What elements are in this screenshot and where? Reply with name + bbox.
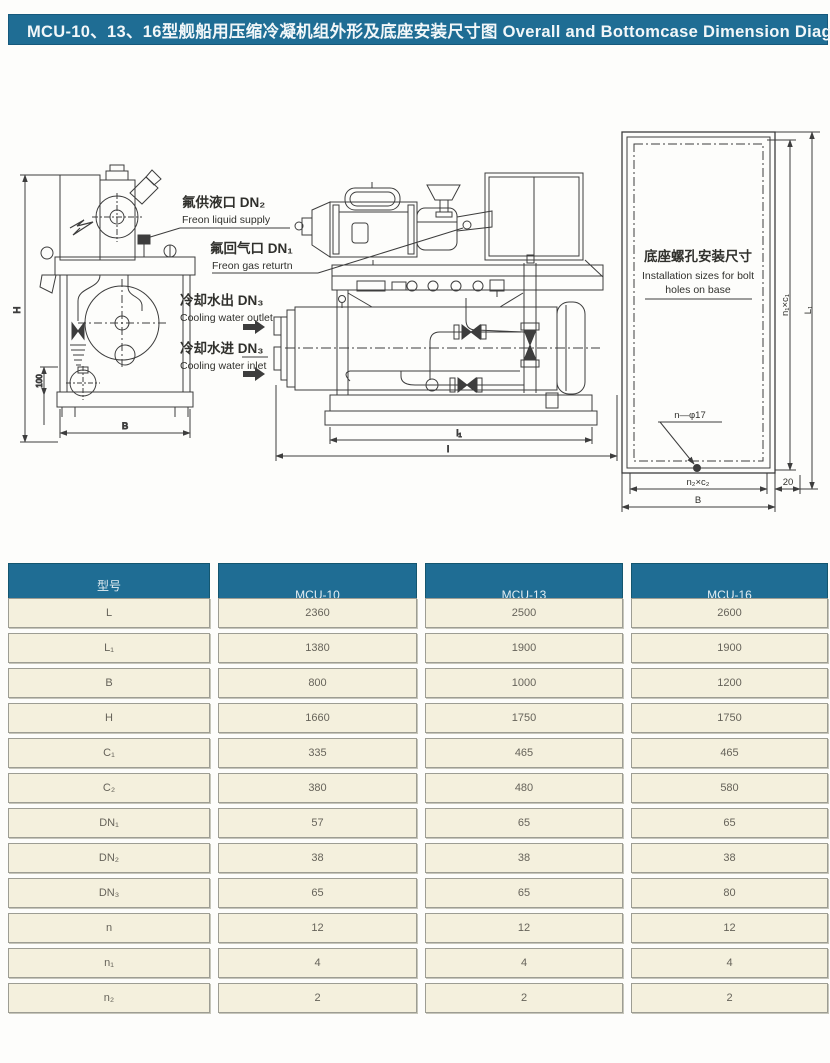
param-cell-H: H xyxy=(8,703,210,733)
value-cell: 2 xyxy=(218,983,417,1013)
value-cell: 2 xyxy=(425,983,623,1013)
param-cell-DN1: DN₁ xyxy=(8,808,210,838)
callout-water-inlet-en: Cooling water inlet xyxy=(180,360,266,372)
value-cell: 4 xyxy=(218,948,417,978)
value-cell: 65 xyxy=(425,878,623,908)
param-cell-C1: C₁ xyxy=(8,738,210,768)
dim-20-label: 20 xyxy=(783,477,794,488)
value-cell: 2600 xyxy=(631,598,828,628)
dim-B2-label: B xyxy=(695,495,701,506)
callout-freon-gas-en: Freon gas returtn xyxy=(212,260,293,272)
param-cell-L1: L₁ xyxy=(8,633,210,663)
value-cell: 2 xyxy=(631,983,828,1013)
value-cell: 38 xyxy=(631,843,828,873)
front-view-drawing: l₁ l xyxy=(274,173,617,461)
value-cell: 465 xyxy=(425,738,623,768)
value-cell: 1200 xyxy=(631,668,828,698)
base-view-title-en2: holes on base xyxy=(665,284,731,296)
value-cell: 4 xyxy=(631,948,828,978)
callout-freon-liquid-en: Freon liquid supply xyxy=(182,214,271,226)
param-cell-n1: n₁ xyxy=(8,948,210,978)
value-cell: 57 xyxy=(218,808,417,838)
value-cell: 580 xyxy=(631,773,828,803)
value-cell: 65 xyxy=(218,878,417,908)
value-cell: 65 xyxy=(425,808,623,838)
value-cell: 1380 xyxy=(218,633,417,663)
param-cell-n: n xyxy=(8,913,210,943)
base-plan-drawing: 底座螺孔安装尺寸 Installation sizes for bolt hol… xyxy=(622,132,820,512)
value-cell: 1900 xyxy=(631,633,828,663)
value-cell: 4 xyxy=(425,948,623,978)
value-cell: 1000 xyxy=(425,668,623,698)
dimension-diagram: H xyxy=(0,95,830,540)
dim-L1-label: L₁ xyxy=(803,306,814,315)
value-cell: 12 xyxy=(218,913,417,943)
base-view-title-zh: 底座螺孔安装尺寸 xyxy=(644,248,752,264)
value-cell: 1660 xyxy=(218,703,417,733)
value-cell: 1750 xyxy=(631,703,828,733)
callout-water-outlet-en: Cooling water outlet xyxy=(180,312,273,324)
value-cell: 2360 xyxy=(218,598,417,628)
diagram-svg: H xyxy=(0,95,830,540)
side-view-drawing: H xyxy=(0,95,195,442)
value-cell: 335 xyxy=(218,738,417,768)
value-cell: 80 xyxy=(631,878,828,908)
param-cell-DN2: DN₂ xyxy=(8,843,210,873)
dim-n2c2-label: n₂×c₂ xyxy=(687,477,710,488)
callout-freon-liquid-zh: 氟供液口 DN₂ xyxy=(182,194,265,210)
catalog-page: MCU-10、13、16型舰船用压缩冷凝机组外形及底座安装尺寸图 Overall… xyxy=(0,0,830,1063)
dim-H-label: H xyxy=(12,306,23,313)
param-cell-B: B xyxy=(8,668,210,698)
value-cell: 12 xyxy=(425,913,623,943)
base-view-title-en1: Installation sizes for bolt xyxy=(642,270,754,282)
value-cell: 2500 xyxy=(425,598,623,628)
callout-freon-gas-zh: 氟回气口 DN₁ xyxy=(210,240,293,256)
bolt-callout-label: n—φ17 xyxy=(674,410,706,421)
value-cell: 465 xyxy=(631,738,828,768)
param-cell-L: L xyxy=(8,598,210,628)
value-cell: 380 xyxy=(218,773,417,803)
value-cell: 38 xyxy=(425,843,623,873)
value-cell: 65 xyxy=(631,808,828,838)
value-cell: 1900 xyxy=(425,633,623,663)
value-cell: 38 xyxy=(218,843,417,873)
value-cell: 480 xyxy=(425,773,623,803)
dim-l-label: l xyxy=(447,444,449,455)
callout-water-outlet-zh: 冷却水出 DN₃ xyxy=(180,292,264,308)
value-cell: 12 xyxy=(631,913,828,943)
callout-water-inlet-zh: 冷却水进 DN₃ xyxy=(180,340,264,356)
dim-n1c1-label: n₁×c₁ xyxy=(780,294,791,316)
value-cell: 1750 xyxy=(425,703,623,733)
value-cell: 800 xyxy=(218,668,417,698)
callout-labels: 氟供液口 DN₂ Freon liquid supply 氟回气口 DN₁ Fr… xyxy=(147,194,463,381)
page-title-bar: MCU-10、13、16型舰船用压缩冷凝机组外形及底座安装尺寸图 Overall… xyxy=(8,14,828,45)
param-cell-n2: n₂ xyxy=(8,983,210,1013)
param-cell-DN3: DN₃ xyxy=(8,878,210,908)
dim-100-label: 100 xyxy=(35,374,44,388)
dim-B-label: B xyxy=(122,421,128,432)
param-cell-C2: C₂ xyxy=(8,773,210,803)
header-model-zh: 型号 xyxy=(97,577,121,595)
dim-l1-label: l₁ xyxy=(456,428,461,439)
page-title: MCU-10、13、16型舰船用压缩冷凝机组外形及底座安装尺寸图 Overall… xyxy=(9,18,830,42)
spec-table: 型号 Model MCU-10 MCU-13 MCU-16 L 2360 250… xyxy=(8,563,828,1013)
